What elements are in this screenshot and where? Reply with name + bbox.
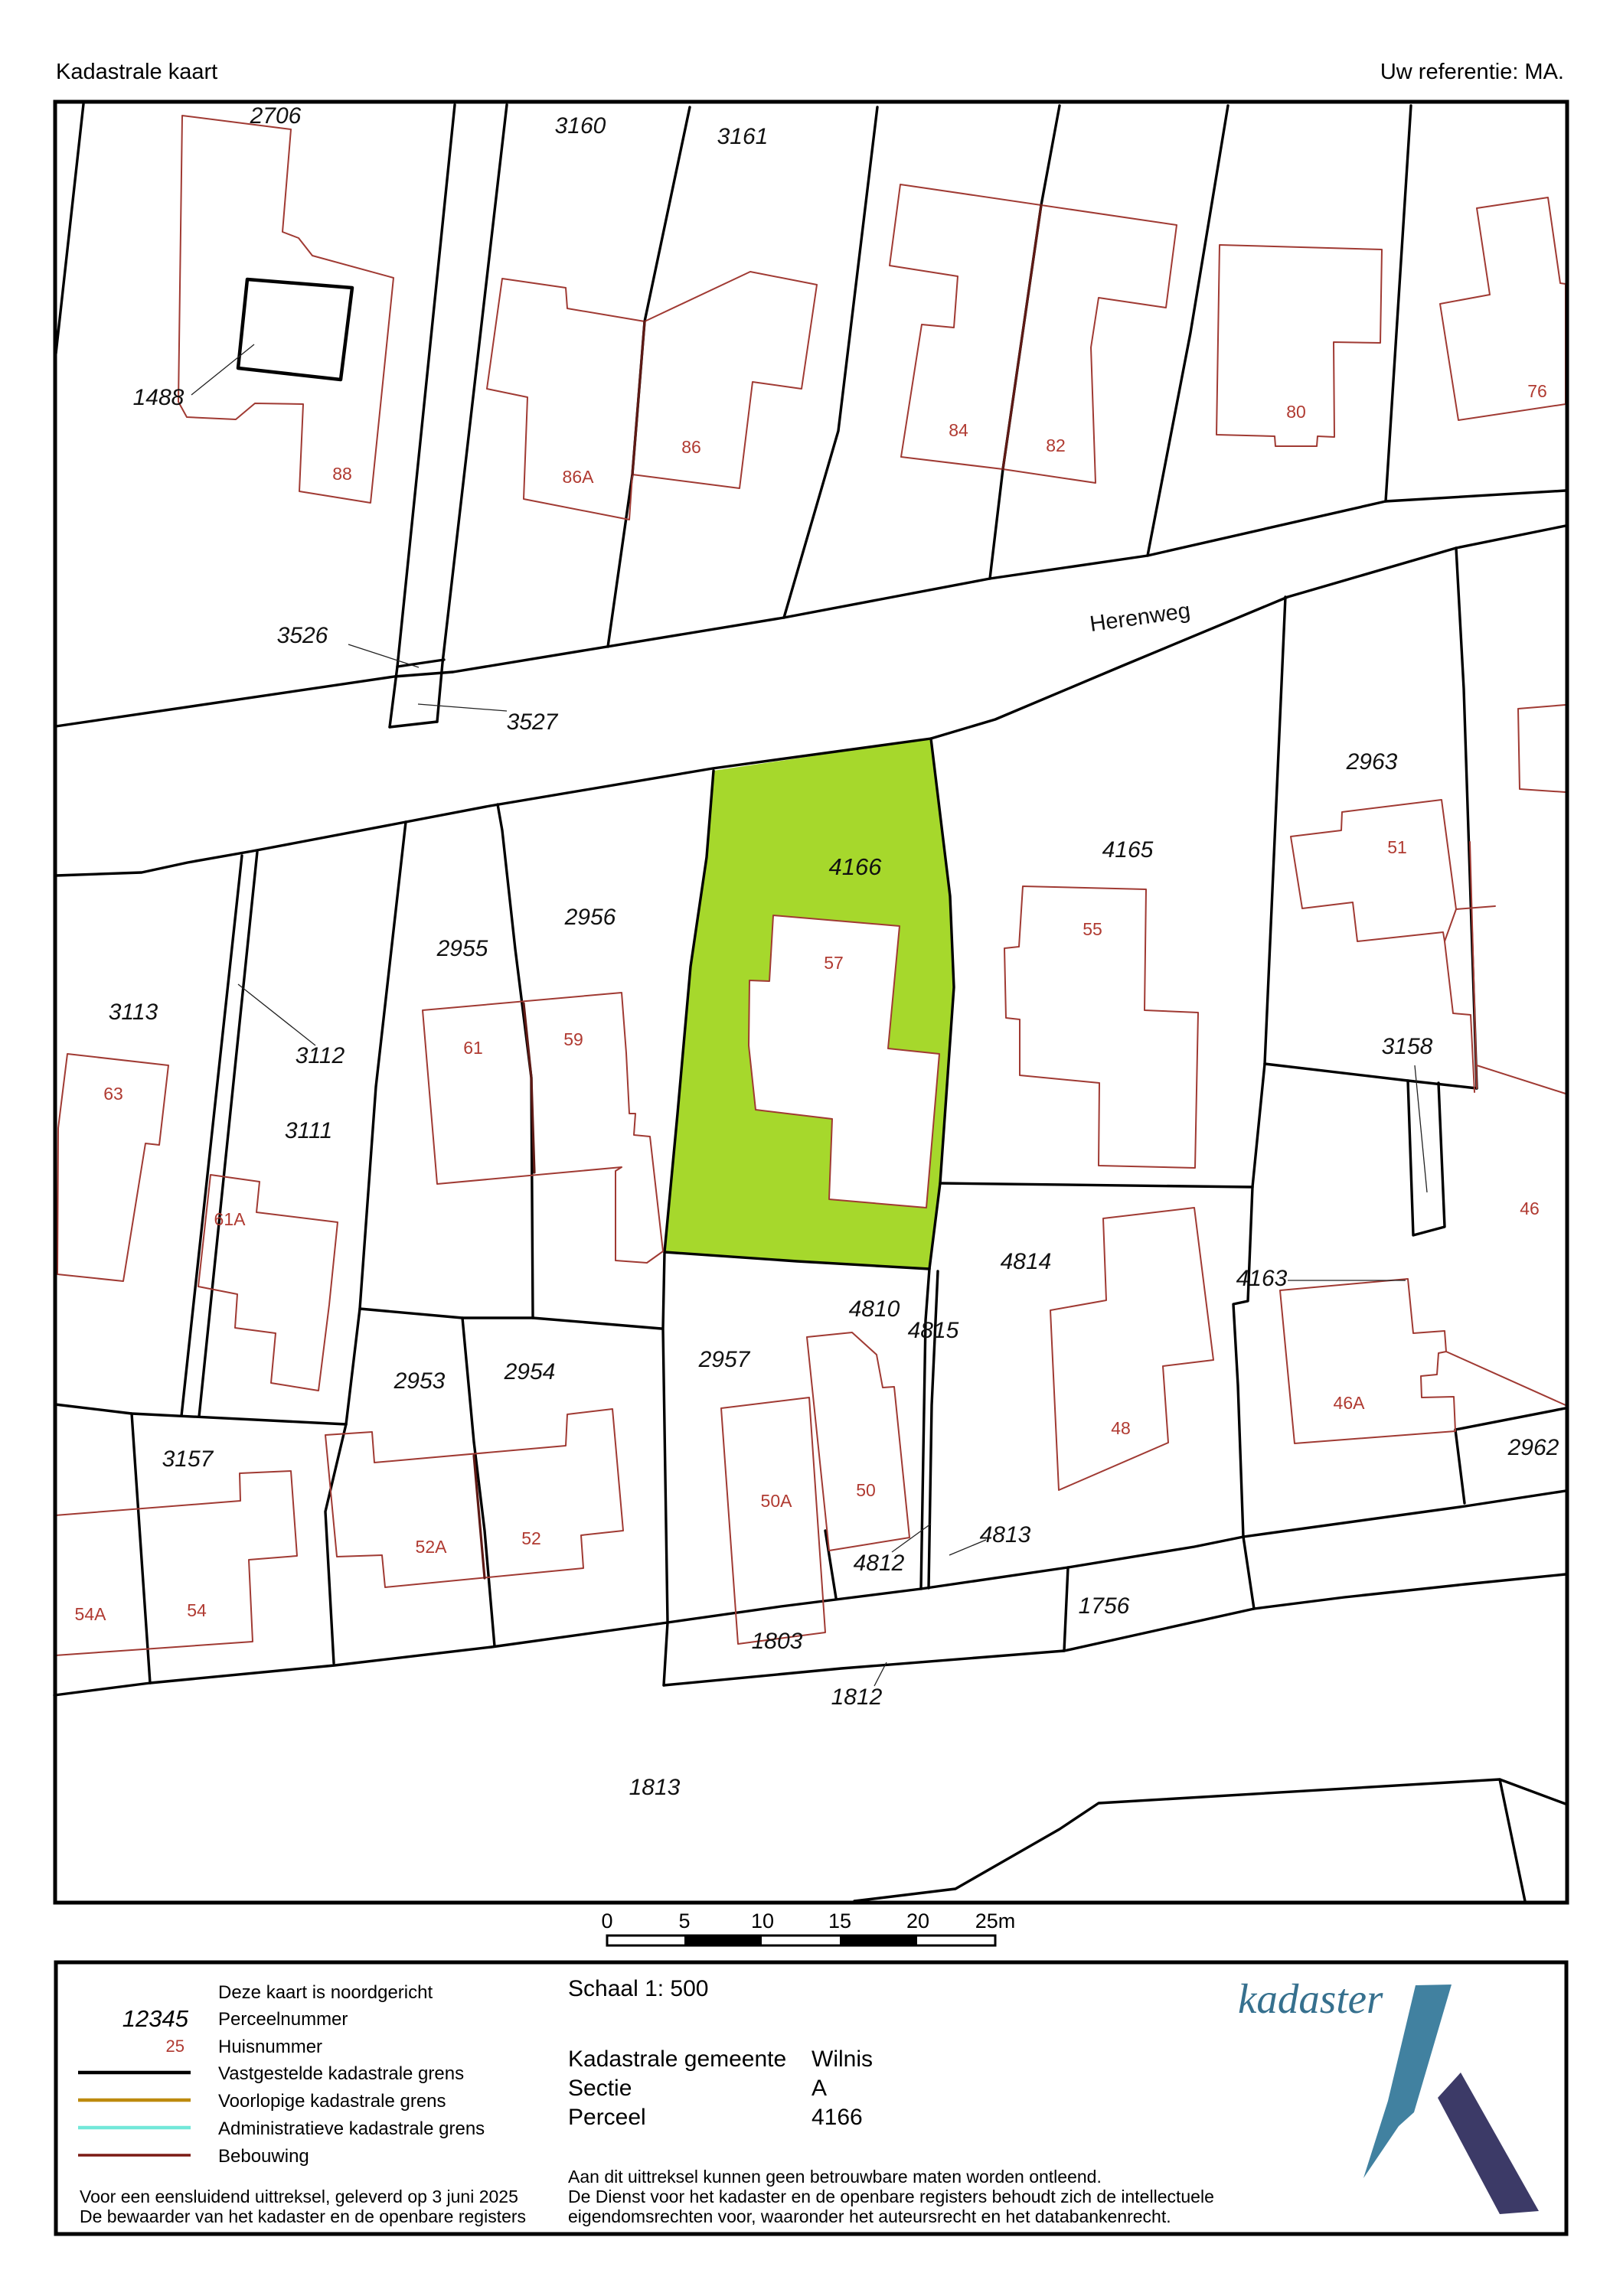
svg-text:Vastgestelde kadastrale grens: Vastgestelde kadastrale grens <box>218 2063 464 2084</box>
svg-text:4166: 4166 <box>829 853 883 880</box>
svg-text:12345: 12345 <box>122 2005 189 2032</box>
svg-text:2962: 2962 <box>1507 1435 1559 1460</box>
svg-text:61: 61 <box>463 1038 483 1058</box>
svg-text:Bebouwing: Bebouwing <box>218 2146 309 2167</box>
svg-text:A: A <box>811 2076 827 2101</box>
svg-text:3526: 3526 <box>277 623 328 648</box>
svg-text:51: 51 <box>1387 837 1407 857</box>
svg-text:Perceel: Perceel <box>568 2105 646 2130</box>
svg-text:Wilnis: Wilnis <box>811 2047 873 2072</box>
svg-text:46: 46 <box>1520 1199 1540 1218</box>
svg-text:Deze kaart is noordgericht: Deze kaart is noordgericht <box>218 1982 433 2003</box>
svg-text:54: 54 <box>187 1600 207 1620</box>
svg-text:15: 15 <box>828 1910 851 1932</box>
svg-text:Uw referentie: MA.: Uw referentie: MA. <box>1380 60 1564 84</box>
svg-text:4166: 4166 <box>811 2105 863 2130</box>
svg-text:52: 52 <box>521 1528 541 1548</box>
svg-text:1813: 1813 <box>629 1775 681 1800</box>
svg-text:59: 59 <box>563 1029 583 1049</box>
svg-text:3160: 3160 <box>555 113 606 139</box>
svg-text:kadaster: kadaster <box>1238 1975 1383 2022</box>
svg-text:25m: 25m <box>975 1910 1016 1932</box>
svg-text:2956: 2956 <box>564 905 616 930</box>
svg-text:Huisnummer: Huisnummer <box>218 2037 322 2057</box>
svg-text:Kadastrale gemeente: Kadastrale gemeente <box>568 2047 786 2072</box>
svg-text:Sectie: Sectie <box>568 2076 632 2101</box>
svg-text:De Dienst voor het kadaster en: De Dienst voor het kadaster en de openba… <box>568 2187 1214 2206</box>
svg-text:52A: 52A <box>416 1537 448 1557</box>
svg-text:Voorlopige kadastrale grens: Voorlopige kadastrale grens <box>218 2091 446 2112</box>
svg-text:4165: 4165 <box>1102 837 1154 863</box>
svg-text:3527: 3527 <box>507 709 559 735</box>
svg-text:Administratieve kadastrale gre: Administratieve kadastrale grens <box>218 2118 485 2139</box>
svg-text:48: 48 <box>1111 1418 1131 1438</box>
svg-text:2953: 2953 <box>394 1368 446 1394</box>
svg-text:2706: 2706 <box>250 103 302 129</box>
svg-text:4163: 4163 <box>1236 1266 1288 1291</box>
svg-text:1812: 1812 <box>831 1684 883 1710</box>
svg-text:Voor een eensluidend uittrekse: Voor een eensluidend uittreksel, gelever… <box>80 2187 518 2206</box>
svg-text:50A: 50A <box>761 1491 793 1511</box>
svg-text:46A: 46A <box>1334 1393 1366 1413</box>
svg-text:57: 57 <box>824 953 844 973</box>
svg-text:5: 5 <box>678 1910 690 1932</box>
svg-text:1756: 1756 <box>1079 1593 1130 1619</box>
svg-text:3161: 3161 <box>717 124 769 149</box>
svg-text:2954: 2954 <box>504 1359 556 1384</box>
svg-text:76: 76 <box>1527 381 1547 401</box>
svg-text:Schaal 1: 500: Schaal 1: 500 <box>568 1976 708 2001</box>
svg-text:4812: 4812 <box>854 1551 905 1576</box>
svg-text:82: 82 <box>1046 435 1066 455</box>
svg-text:84: 84 <box>949 420 968 440</box>
svg-text:25: 25 <box>166 2037 185 2056</box>
svg-text:50: 50 <box>856 1480 876 1500</box>
svg-text:86A: 86A <box>563 467 595 487</box>
svg-text:63: 63 <box>103 1084 123 1104</box>
svg-text:2963: 2963 <box>1346 749 1398 775</box>
svg-text:10: 10 <box>751 1910 774 1932</box>
svg-text:2957: 2957 <box>698 1347 751 1372</box>
svg-text:55: 55 <box>1083 919 1102 939</box>
svg-text:eigendomsrechten voor, waarond: eigendomsrechten voor, waaronder het aut… <box>568 2206 1171 2226</box>
svg-text:3113: 3113 <box>109 1000 158 1025</box>
svg-text:80: 80 <box>1286 402 1306 422</box>
svg-text:2955: 2955 <box>436 936 488 961</box>
svg-text:0: 0 <box>601 1910 612 1932</box>
svg-text:88: 88 <box>332 464 352 484</box>
svg-text:61A: 61A <box>214 1209 247 1229</box>
svg-text:86: 86 <box>681 437 701 457</box>
svg-text:4810: 4810 <box>849 1296 900 1322</box>
svg-text:3111: 3111 <box>285 1118 332 1143</box>
svg-text:1488: 1488 <box>133 385 185 410</box>
svg-text:20: 20 <box>906 1910 929 1932</box>
svg-text:Kadastrale kaart: Kadastrale kaart <box>56 60 217 84</box>
svg-text:3158: 3158 <box>1382 1034 1433 1059</box>
svg-text:Aan dit uittreksel kunnen geen: Aan dit uittreksel kunnen geen betrouwba… <box>568 2167 1102 2187</box>
svg-text:4813: 4813 <box>980 1522 1031 1548</box>
svg-text:4815: 4815 <box>908 1318 959 1343</box>
svg-text:3157: 3157 <box>162 1446 214 1472</box>
svg-text:Perceelnummer: Perceelnummer <box>218 2009 348 2030</box>
svg-text:54A: 54A <box>75 1604 107 1624</box>
svg-text:4814: 4814 <box>1001 1249 1052 1274</box>
svg-text:De bewaarder van het kadaster: De bewaarder van het kadaster en de open… <box>80 2206 526 2226</box>
svg-text:1803: 1803 <box>752 1629 803 1654</box>
svg-text:3112: 3112 <box>296 1043 345 1068</box>
